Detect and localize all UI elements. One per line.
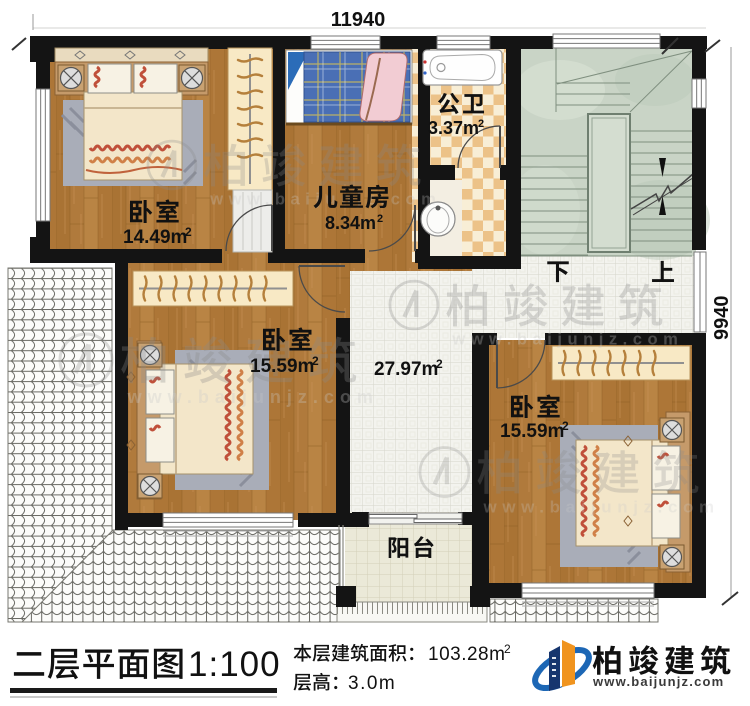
svg-text:3.0m: 3.0m	[348, 673, 396, 694]
svg-text:2: 2	[478, 118, 484, 130]
svg-text:www.baijunjz.com: www.baijunjz.com	[451, 330, 683, 349]
svg-text:www.baijunjz.com: www.baijunjz.com	[483, 497, 720, 516]
svg-text:1:100: 1:100	[188, 645, 281, 684]
svg-text:2: 2	[312, 354, 319, 368]
svg-text:14.49m: 14.49m	[123, 227, 187, 248]
svg-text:27.97m: 27.97m	[374, 359, 438, 380]
svg-text:3.37m: 3.37m	[428, 118, 479, 138]
svg-text:www.baijunjz.com: www.baijunjz.com	[592, 674, 724, 689]
svg-text:8.34m: 8.34m	[325, 213, 376, 233]
svg-text:www.baijunjz.com: www.baijunjz.com	[127, 387, 379, 407]
svg-text:www.baijunjz.com: www.baijunjz.com	[209, 190, 441, 209]
svg-text:9940: 9940	[711, 296, 733, 341]
svg-text:2: 2	[504, 642, 511, 656]
svg-text:2: 2	[562, 419, 569, 433]
svg-text:15.59m: 15.59m	[250, 356, 314, 377]
svg-text:2: 2	[436, 357, 443, 371]
svg-text:103.28m: 103.28m	[428, 644, 505, 665]
svg-text:2: 2	[377, 213, 383, 225]
svg-text:2: 2	[185, 225, 192, 239]
svg-text:15.59m: 15.59m	[500, 421, 564, 442]
